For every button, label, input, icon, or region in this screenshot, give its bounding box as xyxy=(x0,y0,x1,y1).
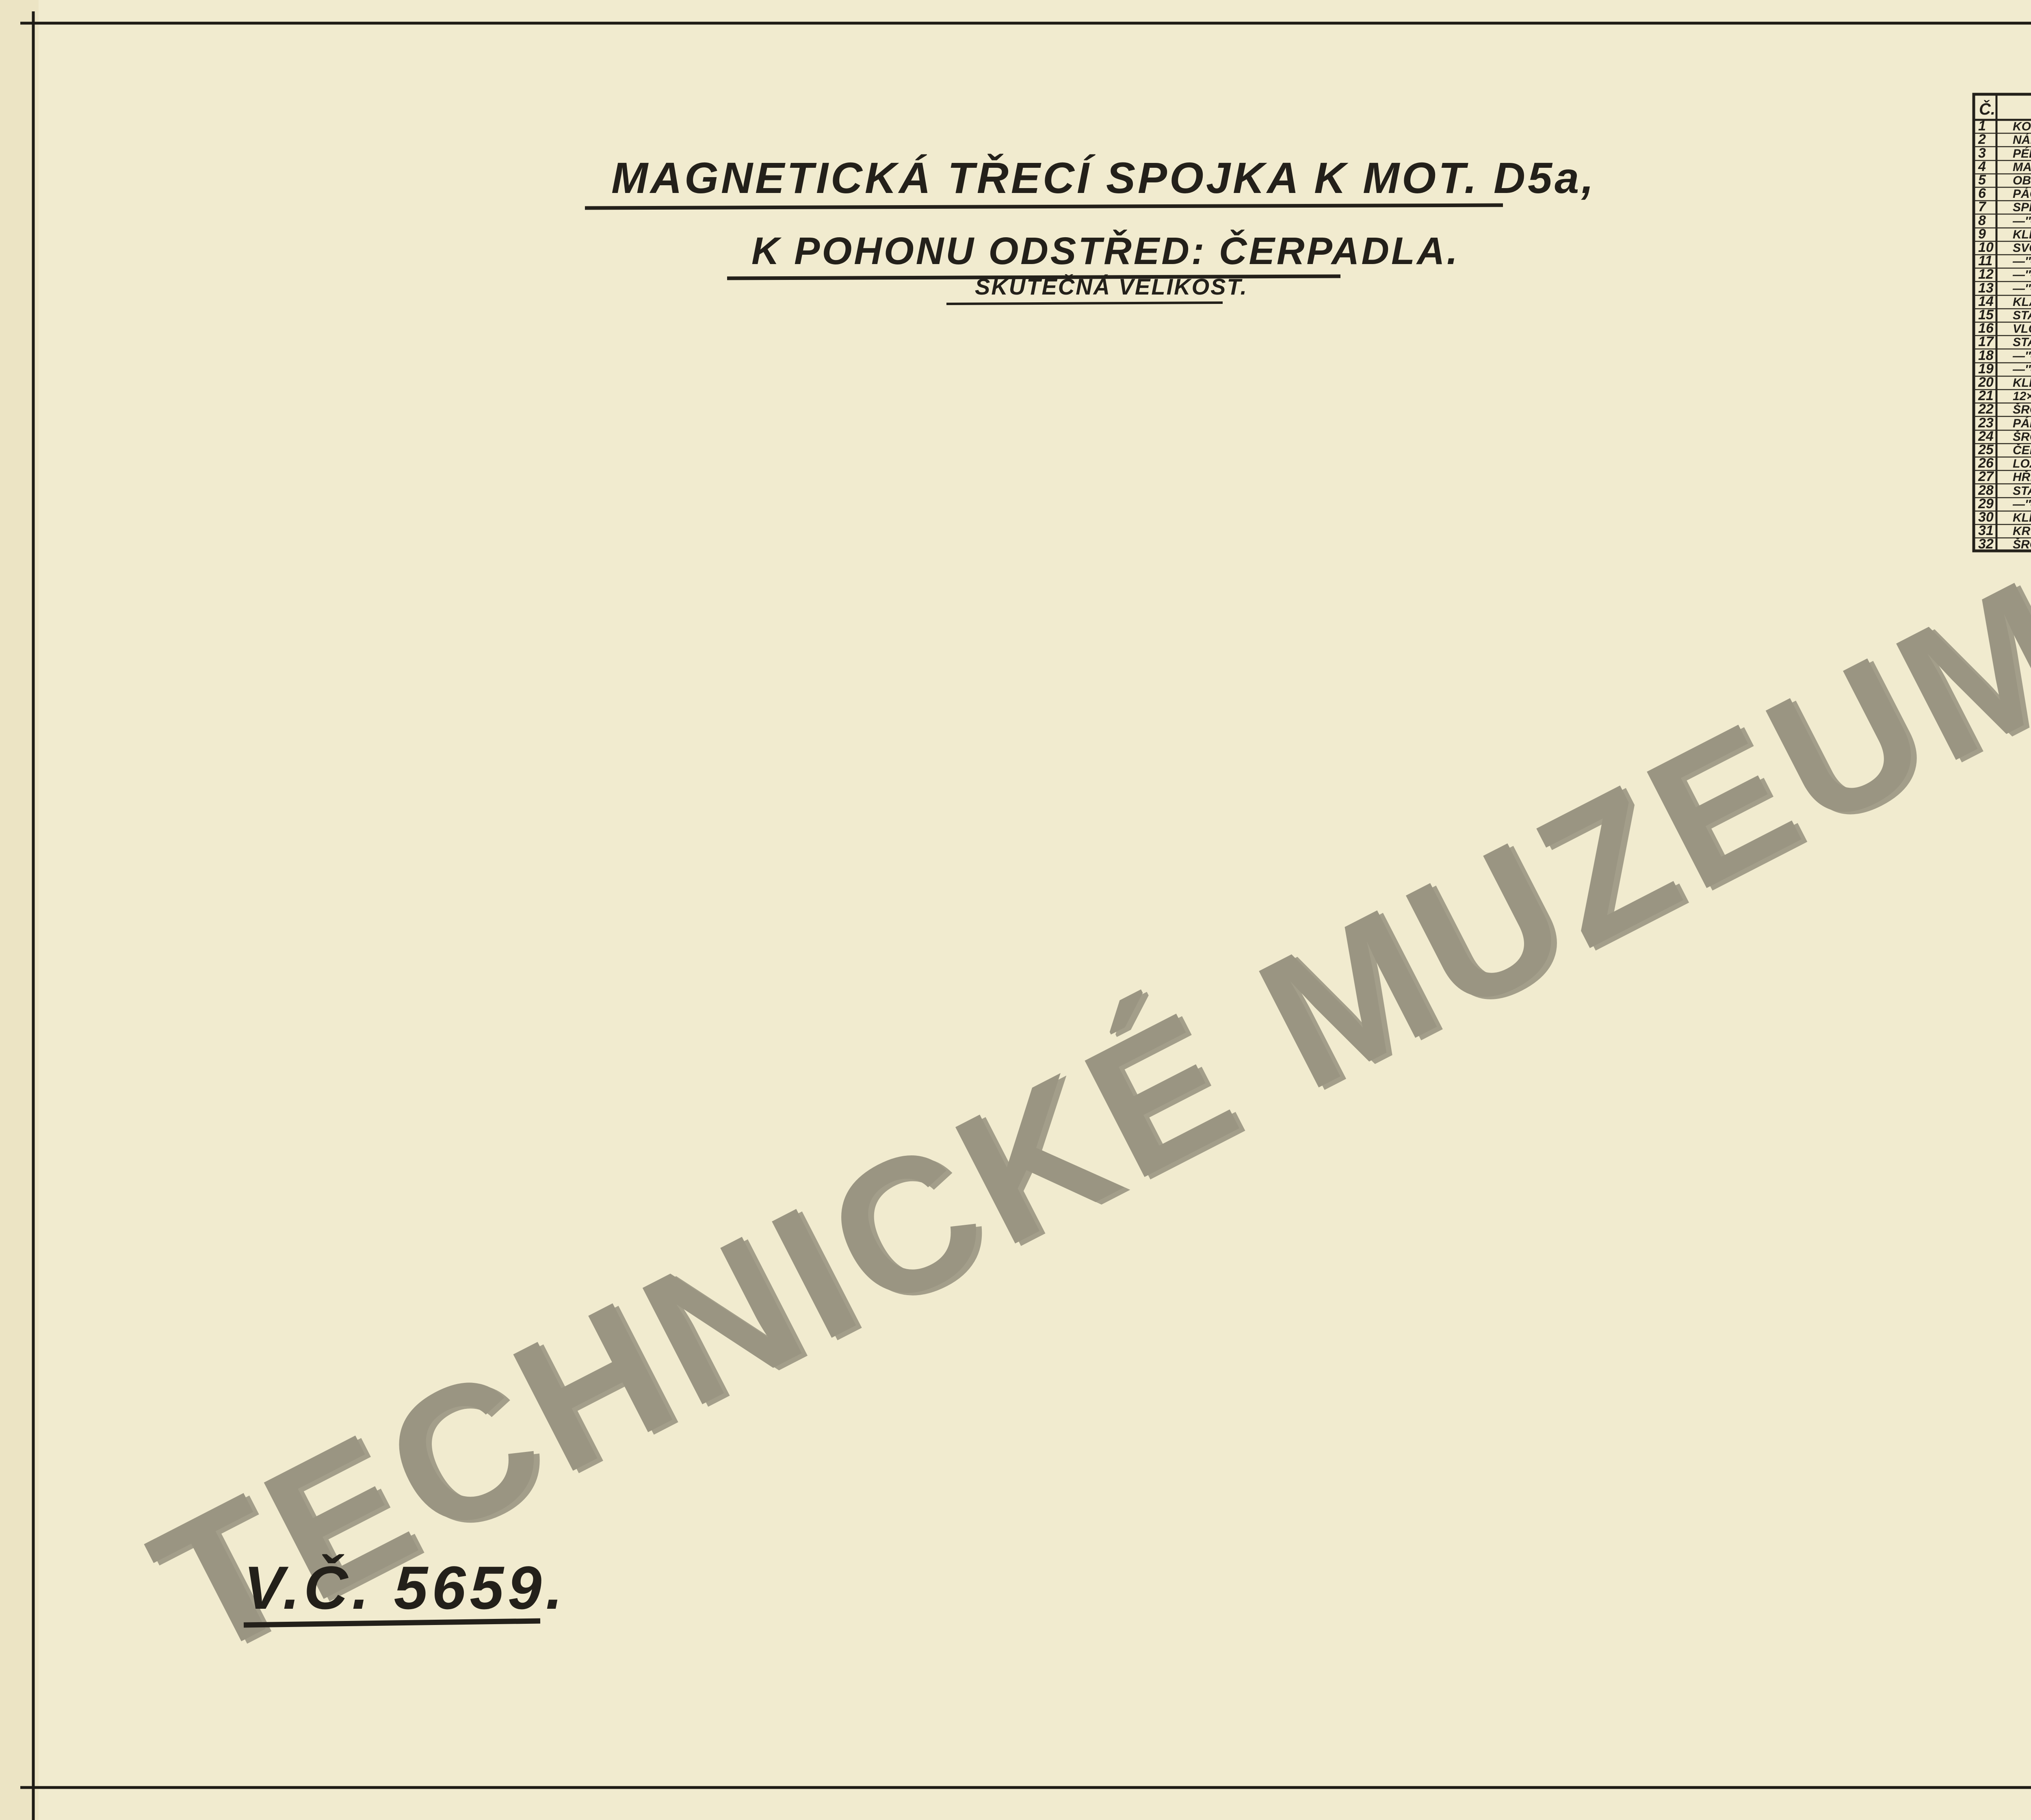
svg-text:STAVĚCÍ ŠROUBEK 5/16″: STAVĚCÍ ŠROUBEK 5/16″ xyxy=(2013,308,2031,322)
svg-text:NÁBOJ: NÁBOJ xyxy=(2013,133,2031,147)
svg-text:MATICE: MATICE xyxy=(2013,160,2031,174)
svg-text:ČELISTˇ: ČELISTˇ xyxy=(2013,443,2031,457)
svg-text:MAGNETICKÁ TŘECÍ SPOJKA K MOT.: MAGNETICKÁ TŘECÍ SPOJKA K MOT. D5a, xyxy=(611,153,1596,202)
svg-text:—″— ŠROUBEK 5 m/m φ: —″— ŠROUBEK 5 m/m φ xyxy=(2012,349,2031,363)
svg-text:OBOJEK: OBOJEK xyxy=(2013,174,2031,187)
svg-text:K POHONU ODSTŘED: ČERPADLA.: K POHONU ODSTŘED: ČERPADLA. xyxy=(751,230,1459,273)
svg-text:ŠROUB 5/8″: ŠROUB 5/8″ xyxy=(2013,430,2031,444)
svg-text:STAVĚCÍ KROUŽEK 25φ: STAVĚCÍ KROUŽEK 25φ xyxy=(2013,484,2031,498)
svg-text:SKUTEČNÁ VELIKOST.: SKUTEČNÁ VELIKOST. xyxy=(975,274,1248,299)
svg-text:12: 12 xyxy=(1978,266,1994,282)
svg-text:—″— 10 m/m φ: —″— 10 m/m φ xyxy=(2012,268,2031,282)
svg-text:KLADKA: KLADKA xyxy=(2013,295,2031,309)
svg-text:VLOŽKA 6 m/m φ: VLOŽKA 6 m/m φ xyxy=(2013,322,2031,336)
svg-text:PÁČKA: PÁČKA xyxy=(2013,187,2031,201)
svg-text:27: 27 xyxy=(1978,469,1994,484)
svg-text:17: 17 xyxy=(1978,334,1994,349)
svg-text:Č.: Č. xyxy=(1979,100,1995,118)
svg-text:PÉRO: PÉRO xyxy=(2013,147,2031,160)
svg-text:STAVĚCÍ ŠROUB 5/8″: STAVĚCÍ ŠROUB 5/8″ xyxy=(2013,335,2031,349)
svg-text:—″— ŠROUBEK 5/16″: —″— ŠROUBEK 5/16″ xyxy=(2012,497,2031,511)
svg-text:12×6×130 m/m: 12×6×130 m/m xyxy=(2013,390,2031,403)
svg-text:KOTOUČ SPOJKY: KOTOUČ SPOJKY xyxy=(2013,119,2031,133)
svg-text:—″— 12 m/m φ: —″— 12 m/m φ xyxy=(2012,255,2031,268)
svg-text:HŘÍDELÍK 25φ 320 DL.: HŘÍDELÍK 25φ 320 DL. xyxy=(2013,470,2031,484)
svg-text:22: 22 xyxy=(1978,401,1994,417)
svg-text:2: 2 xyxy=(1978,132,1986,147)
svg-text:SPIRÁLNÍ PÉRO , DRÁT 8 m/m φ: SPIRÁLNÍ PÉRO , DRÁT 8 m/m φ xyxy=(2013,200,2031,214)
svg-text:ŠROUBEK 5/16″× 22: ŠROUBEK 5/16″× 22 xyxy=(2013,403,2031,416)
svg-text:7: 7 xyxy=(1978,199,1987,214)
svg-text:PÁKA: PÁKA xyxy=(2013,416,2031,430)
svg-text:—″— 12/3/8″ φ: —″— 12/3/8″ φ xyxy=(2012,282,2031,295)
svg-text:—″— —″— —″· 3 m/m φ: —″— —″— —″· 3 m/m φ xyxy=(2012,214,2031,228)
svg-text:KLÍN: KLÍN xyxy=(2013,227,2031,241)
svg-text:KLÍNEK 7×5×65 m/m: KLÍNEK 7×5×65 m/m xyxy=(2013,511,2031,524)
svg-text:V.Č. 5659.: V.Č. 5659. xyxy=(244,1553,567,1622)
svg-text:KLÍN 12×6×85 m/m: KLÍN 12×6×85 m/m xyxy=(2013,376,2031,390)
svg-text:—″— —″— 4 m/m φ: —″— —″— 4 m/m φ xyxy=(2012,363,2031,376)
svg-text:SVORNÍK 22 m/m φ: SVORNÍK 22 m/m φ xyxy=(2013,241,2031,255)
svg-text:LOŽISKO: LOŽISKO xyxy=(2013,457,2031,470)
